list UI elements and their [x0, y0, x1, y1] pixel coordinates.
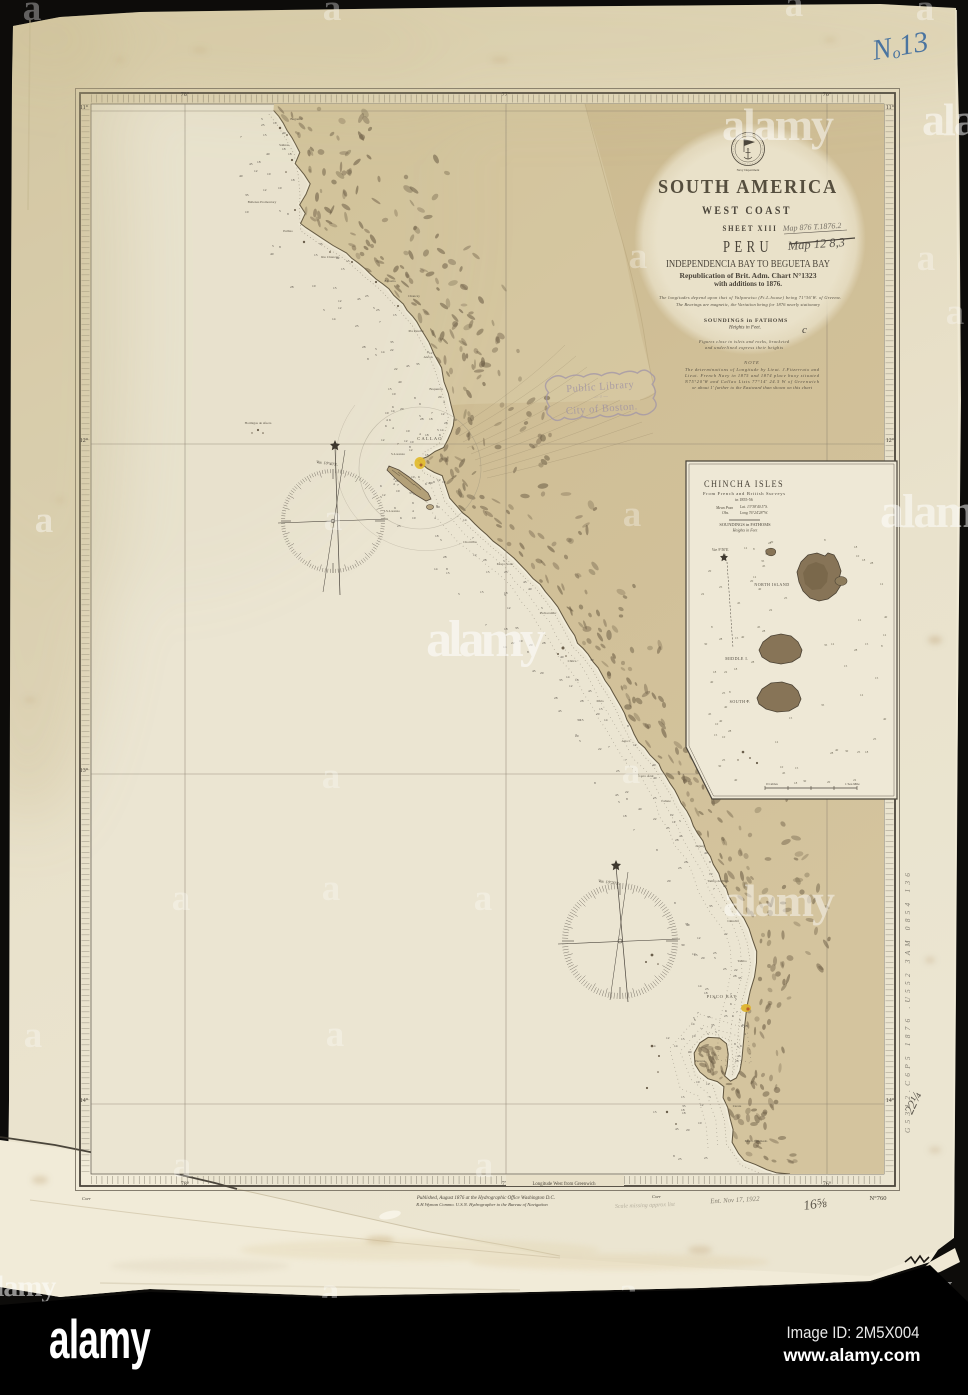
svg-text:20: 20 [770, 540, 774, 544]
svg-text:18: 18 [425, 453, 429, 457]
svg-text:45: 45 [523, 580, 527, 584]
svg-text:1 Sea Mile: 1 Sea Mile [845, 782, 860, 786]
svg-text:Longitude West from Greenwich: Longitude West from Greenwich [532, 1182, 596, 1187]
svg-text:Chilca: Chilca [568, 659, 577, 663]
svg-text:20: 20 [701, 956, 705, 960]
svg-text:10: 10 [245, 210, 249, 214]
svg-text:20: 20 [575, 734, 579, 738]
svg-text:Var. 9°50′E.: Var. 9°50′E. [712, 548, 729, 552]
svg-text:7: 7 [240, 135, 242, 139]
svg-text:5: 5 [737, 1045, 739, 1049]
svg-text:30: 30 [718, 764, 722, 768]
svg-text:18: 18 [429, 417, 433, 421]
svg-text:4: 4 [392, 426, 394, 430]
svg-text:5: 5 [375, 347, 377, 351]
svg-text:18: 18 [257, 160, 261, 164]
svg-text:6: 6 [730, 1002, 732, 1006]
svg-text:20: 20 [667, 879, 671, 883]
svg-text:45: 45 [357, 297, 361, 301]
svg-text:40: 40 [734, 778, 738, 782]
svg-text:15: 15 [865, 642, 869, 646]
svg-text:10: 10 [392, 392, 396, 396]
svg-text:35: 35 [319, 242, 323, 246]
svg-text:12: 12 [709, 872, 713, 876]
svg-text:28: 28 [728, 729, 732, 733]
svg-text:5: 5 [579, 739, 581, 743]
svg-text:INDEPENDENCIA BAY TO BEGUETA B: INDEPENDENCIA BAY TO BEGUETA BAY [666, 259, 830, 270]
svg-text:5: 5 [261, 117, 263, 121]
svg-text:a: a [322, 756, 341, 797]
svg-text:Rio Chancay: Rio Chancay [321, 255, 339, 259]
svg-text:15: 15 [388, 387, 392, 391]
svg-text:9: 9 [433, 480, 435, 484]
svg-text:12: 12 [831, 642, 835, 646]
svg-text:Image ID: 2M5X004: Image ID: 2M5X004 [787, 1324, 920, 1342]
svg-text:a: a [916, 0, 935, 29]
svg-text:and underlined express their h: and underlined express their heights [705, 345, 783, 350]
svg-text:15: 15 [735, 636, 739, 640]
svg-text:Pta Pancha: Pta Pancha [409, 329, 424, 333]
svg-text:5: 5 [440, 538, 442, 542]
svg-text:Obs.: Obs. [722, 511, 729, 515]
svg-text:Pachacamac: Pachacamac [540, 611, 557, 615]
svg-text:40: 40 [282, 131, 286, 135]
svg-text:12: 12 [775, 740, 779, 744]
svg-text:Mala: Mala [597, 699, 604, 703]
svg-text:40: 40 [710, 680, 714, 684]
svg-text:45: 45 [588, 689, 592, 693]
svg-text:a: a [172, 878, 191, 919]
svg-text:12: 12 [569, 684, 573, 688]
svg-text:8: 8 [734, 1042, 736, 1046]
svg-text:20: 20 [596, 712, 600, 716]
svg-text:10: 10 [406, 429, 410, 433]
svg-text:14: 14 [332, 317, 336, 321]
svg-text:40: 40 [653, 776, 657, 780]
svg-text:28: 28 [444, 421, 448, 425]
svg-text:40: 40 [270, 252, 274, 256]
svg-text:a: a [24, 1015, 43, 1056]
svg-text:4: 4 [386, 418, 388, 422]
svg-text:15: 15 [681, 1037, 685, 1041]
svg-text:22: 22 [701, 592, 705, 596]
svg-text:35: 35 [711, 1023, 715, 1027]
svg-text:15: 15 [341, 267, 345, 271]
svg-text:15: 15 [393, 313, 397, 317]
svg-text:8: 8 [656, 848, 658, 852]
svg-text:5: 5 [323, 308, 325, 312]
svg-text:40: 40 [724, 705, 728, 709]
svg-text:15: 15 [714, 733, 718, 737]
svg-text:28: 28 [675, 838, 679, 842]
svg-text:35: 35 [707, 1015, 711, 1019]
svg-text:14: 14 [434, 567, 438, 571]
svg-text:28: 28 [362, 345, 366, 349]
svg-text:a: a [785, 0, 804, 25]
svg-text:28: 28 [870, 561, 874, 565]
svg-text:35: 35 [416, 362, 420, 366]
svg-text:6: 6 [392, 405, 394, 409]
svg-text:45: 45 [708, 712, 712, 716]
svg-text:40: 40 [266, 152, 270, 156]
svg-text:25: 25 [616, 769, 620, 773]
svg-text:40: 40 [884, 615, 888, 619]
svg-text:9: 9 [411, 463, 413, 467]
svg-text:28: 28 [290, 285, 294, 289]
svg-text:7: 7 [608, 745, 610, 749]
svg-text:10: 10 [856, 554, 860, 558]
svg-text:40: 40 [758, 587, 762, 591]
svg-text:20: 20 [540, 671, 544, 675]
svg-text:25: 25 [713, 951, 717, 955]
svg-text:7: 7 [736, 1010, 738, 1014]
svg-text:Morro Solar: Morro Solar [497, 562, 515, 566]
svg-text:22: 22 [724, 670, 728, 674]
svg-text:c: c [802, 324, 807, 336]
svg-text:35: 35 [821, 703, 825, 707]
svg-text:Chancay: Chancay [408, 294, 420, 298]
svg-text:40: 40 [883, 717, 887, 721]
svg-text:Corr: Corr [82, 1196, 91, 1201]
svg-text:15: 15 [599, 707, 603, 711]
svg-text:6: 6 [400, 516, 402, 520]
svg-text:12: 12 [706, 1082, 710, 1086]
svg-text:25: 25 [365, 294, 369, 298]
svg-text:18: 18 [623, 814, 627, 818]
svg-text:28: 28 [751, 660, 755, 664]
svg-text:18: 18 [504, 591, 508, 595]
svg-text:a: a [622, 751, 641, 792]
svg-text:SOUNDINGS in FATHOMS: SOUNDINGS in FATHOMS [704, 318, 788, 324]
svg-text:14: 14 [381, 350, 385, 354]
svg-text:28: 28 [684, 860, 688, 864]
svg-text:45: 45 [249, 162, 253, 166]
svg-text:25: 25 [784, 596, 788, 600]
svg-text:8 Casita: 8 Casita [384, 279, 396, 283]
svg-text:8: 8 [287, 212, 289, 216]
svg-text:25: 25 [653, 796, 657, 800]
svg-text:5: 5 [714, 956, 716, 960]
svg-text:18: 18 [854, 545, 858, 549]
svg-text:a: a [322, 868, 341, 909]
svg-text:a: a [326, 1014, 345, 1055]
svg-text:28: 28 [733, 974, 737, 978]
svg-text:Navy Department: Navy Department [737, 168, 760, 172]
svg-text:8: 8 [279, 245, 281, 249]
svg-text:22: 22 [598, 747, 602, 751]
svg-text:12: 12 [858, 618, 862, 622]
svg-text:Jaguay: Jaguay [695, 844, 705, 848]
svg-text:40: 40 [652, 763, 656, 767]
svg-text:12: 12 [672, 820, 676, 824]
svg-text:20: 20 [746, 699, 750, 703]
svg-text:15: 15 [580, 718, 584, 722]
svg-text:40: 40 [719, 719, 723, 723]
svg-text:6: 6 [741, 1024, 743, 1028]
svg-text:12: 12 [409, 448, 413, 452]
svg-text:25: 25 [261, 123, 265, 127]
svg-text:15: 15 [314, 253, 318, 257]
svg-text:15: 15 [486, 570, 490, 574]
svg-text:Published, August 1876 at the: Published, August 1876 at the Hydrograph… [416, 1196, 555, 1201]
svg-text:25: 25 [355, 324, 359, 328]
svg-text:40: 40 [638, 807, 642, 811]
svg-text:22: 22 [724, 932, 728, 936]
svg-text:7: 7 [431, 411, 433, 415]
svg-text:5: 5 [715, 1030, 717, 1034]
svg-text:5: 5 [707, 1032, 709, 1036]
svg-text:Paracas: Paracas [695, 1059, 706, 1063]
svg-text:7: 7 [397, 442, 399, 446]
svg-text:18: 18 [682, 1111, 686, 1115]
svg-text:5: 5 [709, 1095, 711, 1099]
svg-text:14: 14 [698, 984, 702, 988]
svg-text:MIDDLE I.: MIDDLE I. [725, 656, 748, 661]
svg-text:35: 35 [390, 340, 394, 344]
svg-text:a: a [35, 500, 54, 541]
svg-text:12: 12 [753, 575, 757, 579]
svg-text:28: 28 [483, 558, 487, 562]
svg-text:15: 15 [844, 664, 848, 668]
svg-text:Chorrillos: Chorrillos [463, 540, 477, 544]
svg-text:a: a [629, 236, 648, 277]
svg-text:alamy: alamy [426, 611, 546, 668]
svg-text:8: 8 [367, 357, 369, 361]
svg-text:Lat. 13°38′40.5″S.: Lat. 13°38′40.5″S. [739, 505, 768, 509]
svg-text:4: 4 [428, 481, 430, 485]
svg-text:14: 14 [463, 518, 467, 522]
svg-text:45: 45 [615, 793, 619, 797]
svg-text:5: 5 [272, 244, 274, 248]
svg-text:10: 10 [278, 186, 282, 190]
svg-text:8: 8 [594, 781, 596, 785]
svg-text:Begonia: Begonia [290, 117, 302, 121]
svg-text:12: 12 [254, 169, 258, 173]
svg-text:Pulliao: Pulliao [283, 229, 293, 233]
svg-text:78°: 78° [181, 91, 190, 98]
svg-text:12: 12 [700, 1103, 704, 1107]
svg-text:45: 45 [762, 564, 766, 568]
svg-text:N75°20′W and Callao Lists 77°1: N75°20′W and Callao Lists 77°14′ 24.5 W … [684, 379, 820, 384]
svg-text:18: 18 [442, 480, 446, 484]
svg-text:6: 6 [418, 475, 420, 479]
svg-text:9: 9 [419, 402, 421, 406]
svg-text:10: 10 [411, 475, 415, 479]
svg-text:4: 4 [434, 516, 436, 520]
svg-text:8: 8 [414, 396, 416, 400]
svg-text:28: 28 [554, 696, 558, 700]
svg-text:Asia I.: Asia I. [621, 739, 630, 743]
svg-text:10: 10 [385, 411, 389, 415]
svg-text:12: 12 [338, 306, 342, 310]
svg-text:18: 18 [794, 781, 798, 785]
svg-text:25: 25 [666, 826, 670, 830]
svg-text:20: 20 [708, 569, 712, 573]
svg-text:22: 22 [769, 608, 773, 612]
svg-text:8: 8 [673, 1154, 675, 1158]
svg-text:7: 7 [713, 887, 715, 891]
svg-text:28: 28 [854, 648, 858, 652]
svg-text:12: 12 [263, 188, 267, 192]
svg-text:10: 10 [312, 284, 316, 288]
svg-text:12: 12 [880, 582, 884, 586]
svg-text:35: 35 [765, 552, 769, 556]
svg-text:15: 15 [263, 133, 267, 137]
svg-text:30: 30 [681, 943, 685, 947]
svg-text:15: 15 [333, 286, 337, 290]
svg-text:9: 9 [412, 501, 414, 505]
svg-text:28: 28 [830, 751, 834, 755]
svg-text:5: 5 [279, 209, 281, 213]
svg-text:10: 10 [780, 765, 784, 769]
svg-text:Corr: Corr [652, 1194, 661, 1199]
svg-text:28: 28 [762, 629, 766, 633]
svg-text:45: 45 [406, 364, 410, 368]
svg-text:10: 10 [396, 489, 400, 493]
svg-text:5: 5 [618, 800, 620, 804]
svg-text:40: 40 [704, 851, 708, 855]
svg-text:alamy: alamy [722, 99, 834, 150]
svg-text:15: 15 [795, 766, 799, 770]
svg-text:4: 4 [393, 482, 395, 486]
svg-text:5: 5 [679, 819, 681, 823]
svg-text:alamy: alamy [49, 1309, 151, 1370]
svg-text:alamy: alamy [922, 94, 968, 145]
svg-text:Mean Posn: Mean Posn [715, 506, 733, 510]
svg-text:5: 5 [373, 306, 375, 310]
svg-text:15: 15 [480, 590, 484, 594]
svg-text:14: 14 [440, 428, 444, 432]
svg-text:25: 25 [719, 585, 723, 589]
svg-text:SOUTH AMERICA: SOUTH AMERICA [658, 176, 838, 198]
svg-text:or about 1′ further to the Eas: or about 1′ further to the Eastward than… [692, 385, 813, 390]
svg-text:25: 25 [694, 953, 698, 957]
svg-text:6: 6 [389, 418, 391, 422]
svg-text:10: 10 [722, 735, 726, 739]
svg-text:35: 35 [738, 976, 742, 980]
svg-text:20: 20 [827, 780, 831, 784]
svg-text:13°: 13° [80, 767, 89, 774]
svg-text:18: 18 [291, 178, 295, 182]
svg-text:45: 45 [675, 1127, 679, 1131]
svg-text:6: 6 [725, 1009, 727, 1013]
svg-text:Morro Quemado: Morro Quemado [745, 1139, 768, 1143]
svg-text:20: 20 [686, 1128, 690, 1132]
svg-text:25: 25 [723, 967, 727, 971]
svg-text:15: 15 [875, 676, 879, 680]
svg-text:8: 8 [674, 901, 676, 905]
svg-text:25: 25 [722, 758, 726, 762]
svg-text:12°: 12° [80, 437, 89, 444]
svg-text:6: 6 [732, 1014, 734, 1018]
svg-text:N°760: N°760 [869, 1195, 886, 1202]
svg-text:5: 5 [458, 592, 460, 596]
svg-text:12°: 12° [886, 437, 895, 444]
svg-text:45: 45 [558, 709, 562, 713]
svg-text:28: 28 [443, 555, 447, 559]
svg-text:30: 30 [845, 749, 849, 753]
svg-text:Hormigas de afuera: Hormigas de afuera [245, 421, 272, 425]
svg-text:45: 45 [757, 625, 761, 629]
svg-text:30: 30 [704, 642, 708, 646]
svg-text:12: 12 [441, 412, 445, 416]
svg-text:10: 10 [267, 172, 271, 176]
svg-text:28: 28 [719, 637, 723, 641]
svg-text:a: a [323, 0, 342, 29]
svg-text:WEST COAST: WEST COAST [702, 203, 792, 217]
svg-text:5: 5 [380, 495, 382, 499]
svg-text:18: 18 [713, 670, 717, 674]
svg-text:Heights in Feet: Heights in Feet [732, 528, 759, 533]
svg-text:a: a [324, 498, 343, 539]
svg-text:18: 18 [435, 534, 439, 538]
svg-text:22: 22 [734, 968, 738, 972]
svg-text:28: 28 [744, 1024, 748, 1028]
svg-text:12: 12 [382, 493, 386, 497]
svg-text:10: 10 [273, 121, 277, 125]
svg-text:12: 12 [437, 478, 441, 482]
svg-text:30: 30 [590, 658, 594, 662]
svg-text:12: 12 [666, 1036, 670, 1040]
svg-text:25: 25 [376, 308, 380, 312]
svg-text:Ancon: Ancon [423, 355, 432, 359]
svg-text:76°: 76° [823, 1181, 832, 1188]
svg-text:40: 40 [398, 380, 402, 384]
svg-text:5: 5 [419, 414, 421, 418]
svg-text:7: 7 [397, 483, 399, 487]
svg-text:35: 35 [245, 193, 249, 197]
svg-text:in 1855-56: in 1855-56 [735, 497, 752, 502]
svg-text:22: 22 [723, 553, 727, 557]
svg-text:15: 15 [681, 1095, 685, 1099]
svg-text:7: 7 [633, 828, 635, 832]
svg-text:a: a [475, 1145, 494, 1186]
svg-text:28: 28 [580, 699, 584, 703]
svg-text:30: 30 [803, 779, 807, 783]
svg-text:5: 5 [437, 428, 439, 432]
svg-text:Tambo: Tambo [737, 959, 747, 963]
svg-text:PERU: PERU [723, 237, 773, 256]
svg-text:28: 28 [542, 641, 546, 645]
svg-text:Heights in Feet.: Heights in Feet. [728, 326, 761, 331]
svg-text:8: 8 [436, 504, 438, 508]
svg-text:The determinations of Longitud: The determinations of Longitude by Lieut… [685, 367, 820, 372]
svg-text:Long 76°24′28″W.: Long 76°24′28″W. [739, 511, 768, 515]
svg-text:6: 6 [740, 1044, 742, 1048]
svg-text:45: 45 [782, 771, 786, 775]
svg-text:25: 25 [873, 737, 877, 741]
svg-text:14: 14 [691, 1022, 695, 1026]
svg-text:77°: 77° [502, 91, 511, 98]
svg-text:11°: 11° [886, 104, 895, 111]
svg-text:10: 10 [698, 1121, 702, 1125]
svg-text:PISCO BAY: PISCO BAY [707, 994, 738, 999]
svg-text:11°: 11° [80, 104, 89, 111]
svg-text:6: 6 [385, 424, 387, 428]
svg-text:25: 25 [504, 570, 508, 574]
svg-text:40: 40 [239, 174, 243, 178]
svg-text:alamy: alamy [0, 1270, 56, 1303]
svg-text:20: 20 [750, 579, 754, 583]
svg-text:Ballenas Promontory: Ballenas Promontory [248, 200, 277, 204]
svg-text:alamy: alamy [723, 875, 835, 926]
svg-text:18: 18 [575, 678, 579, 682]
svg-text:7: 7 [701, 1027, 703, 1031]
svg-text:25: 25 [678, 866, 682, 870]
svg-text:14: 14 [566, 675, 570, 679]
svg-text:12: 12 [507, 606, 511, 610]
svg-text:20: 20 [438, 395, 442, 399]
